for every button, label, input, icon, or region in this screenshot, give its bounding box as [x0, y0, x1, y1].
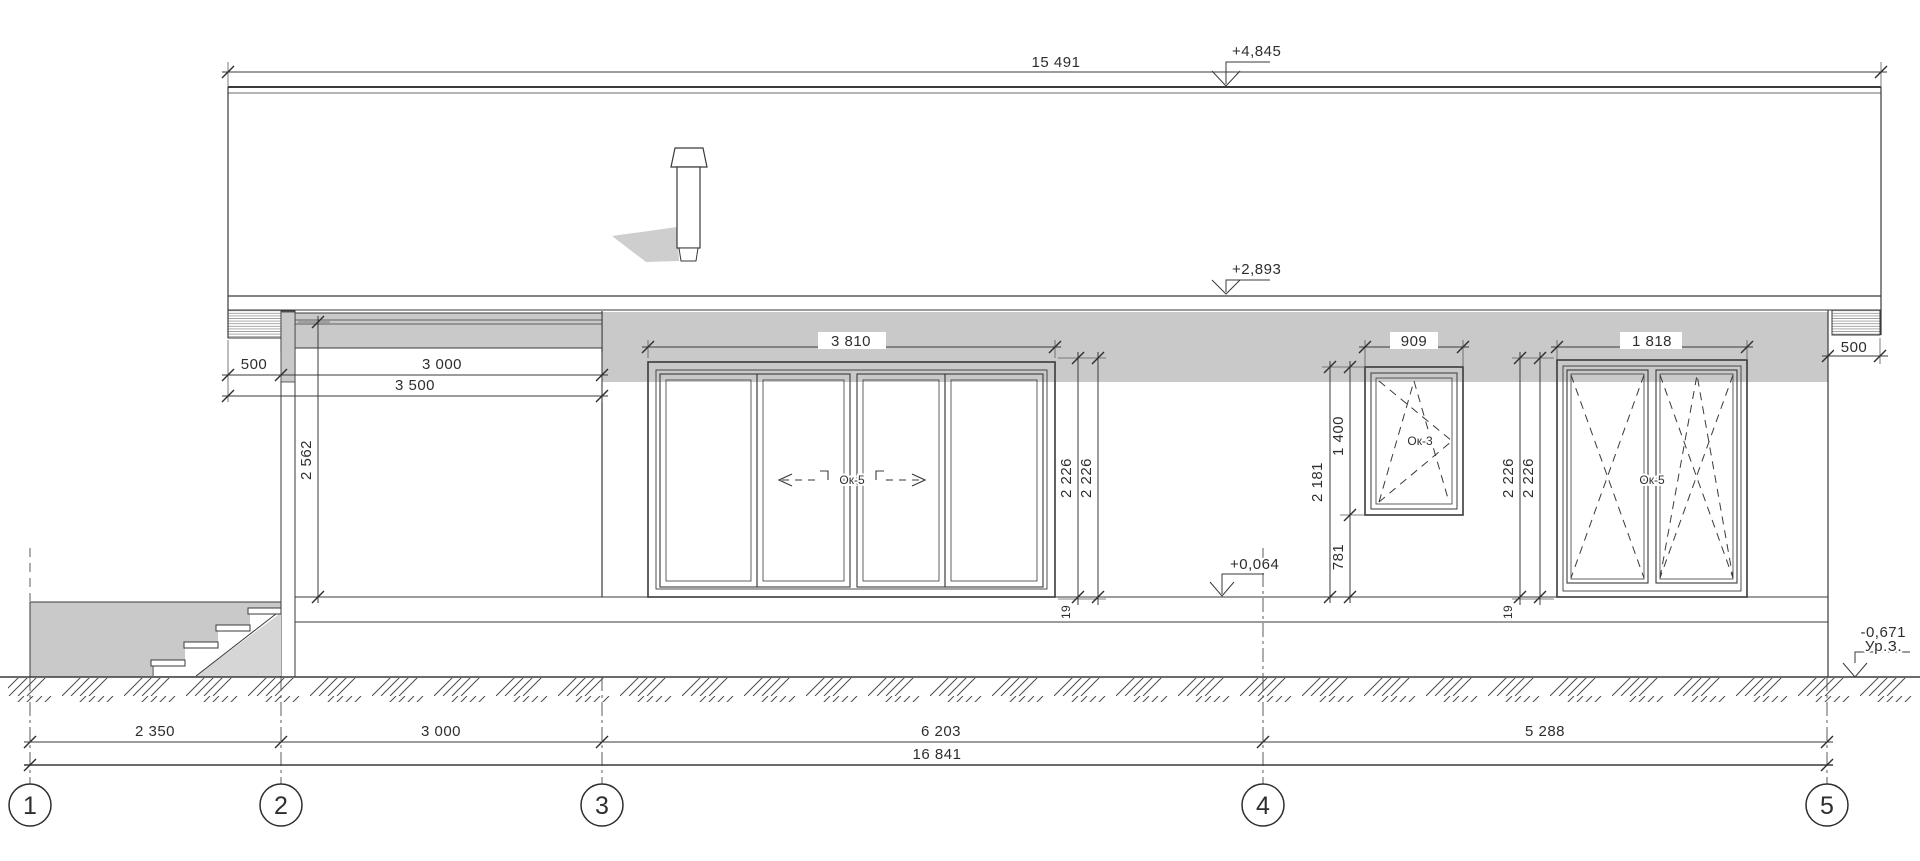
dim-w2-width: 909: [1401, 333, 1428, 350]
dim-w3-h2: 2 226: [1520, 458, 1537, 498]
window-ok3: Ок-3: [1365, 367, 1463, 515]
dim-w1-width: 3 810: [831, 333, 871, 350]
fascia-end-right: [1832, 310, 1880, 335]
dim-w2-sill: 781: [1330, 544, 1347, 571]
w1-glass-1: [666, 380, 751, 581]
w3-panel-1: [1567, 370, 1648, 583]
elevation-drawing: Ок-5 Ок-3 Ок-5 15 491 +4,845: [0, 0, 1920, 861]
w1-label: Ок-5: [839, 473, 865, 487]
w3-open-symbol-1: [1571, 375, 1644, 578]
chimney-cap: [671, 148, 707, 167]
axis-label-2: 2: [274, 792, 288, 820]
dim-bay-3-4: 6 203: [921, 723, 961, 740]
dim-right-overhang: 500: [1822, 338, 1888, 364]
level-floor-value: +0,064: [1230, 556, 1279, 573]
tread-4: [151, 660, 185, 666]
tread-2: [216, 625, 250, 631]
dim-roof-span-value: 15 491: [1032, 54, 1081, 71]
axis-label-1: 1: [23, 792, 37, 820]
dim-porch-overhang: 500: [241, 356, 268, 373]
roof: [228, 87, 1881, 338]
dim-porch-overall: 3 500: [395, 377, 435, 394]
canopy-band: [295, 313, 602, 348]
dim-w3-width: 1 818: [1632, 333, 1672, 350]
axis-label-3: 3: [595, 792, 609, 820]
dim-w1-sill: 19: [1059, 605, 1073, 619]
level-ground-name: Ур.З.: [1865, 638, 1902, 655]
porch-column: [281, 311, 295, 677]
dim-w2-head: 2 181: [1309, 462, 1326, 502]
level-mark-floor: +0,064: [1210, 548, 1279, 676]
chimney-base: [679, 248, 698, 261]
dim-bay-1-2: 2 350: [135, 723, 175, 740]
w3-label: Ок-5: [1639, 473, 1665, 487]
dim-roof-span: 15 491: [222, 54, 1887, 87]
w1-glass-2: [763, 380, 844, 581]
w2-label: Ок-3: [1407, 434, 1433, 448]
w1-glass-4: [951, 380, 1037, 581]
w1-panel-4: [945, 374, 1043, 587]
level-roof-value: +4,845: [1232, 43, 1281, 60]
level-mark-ground: -0,671 Ур.З.: [1843, 624, 1910, 677]
chimney-body: [677, 167, 700, 248]
column-shadow: [281, 312, 295, 382]
roof-face: [228, 87, 1881, 296]
axis-label-5: 5: [1820, 792, 1834, 820]
porch-canopy: [295, 313, 602, 348]
dim-w2-height: 1 400: [1330, 416, 1347, 456]
drawing-canvas: Ок-5 Ок-3 Ок-5 15 491 +4,845: [0, 0, 1920, 861]
dim-w1-h1: 2 226: [1058, 458, 1075, 498]
w1-slide-arrow-left: [779, 471, 828, 486]
dim-porch-height: 2 562: [298, 440, 315, 480]
dim-bay-2-3: 3 000: [421, 723, 461, 740]
w1-slide-arrow-right: [876, 471, 925, 486]
dim-w3-h1: 2 226: [1500, 458, 1517, 498]
dim-w1-h2: 2 226: [1078, 458, 1095, 498]
porch-steps: [30, 548, 281, 677]
w1-panel-2: [757, 374, 850, 587]
tread-1: [248, 608, 281, 614]
axis-bubbles: 1 2 3 4 5: [9, 784, 1848, 826]
fascia-end-left: [228, 310, 281, 338]
window-sliding-ok5: Ок-5: [648, 362, 1055, 597]
ground: [0, 677, 1920, 702]
w3-panel-2: [1656, 370, 1737, 583]
tread-3: [184, 642, 218, 648]
window-double-ok5: Ок-5: [1557, 360, 1747, 597]
dim-porch: 500 3 000 3 500 2 562: [222, 316, 608, 603]
dim-bay-4-5: 5 288: [1525, 723, 1565, 740]
dim-porch-width: 3 000: [422, 356, 462, 373]
level-mark-roof: +4,845: [1212, 43, 1281, 86]
dim-w3-sill: 19: [1501, 605, 1515, 619]
facade-wall: [30, 310, 1828, 677]
axis-label-4: 4: [1256, 792, 1270, 820]
w1-panel-1: [660, 374, 757, 587]
ground-hatch: [8, 678, 1912, 702]
dim-total: 16 841: [913, 746, 962, 763]
level-eaves-value: +2,893: [1232, 261, 1281, 278]
w3-open-symbol-2: [1660, 375, 1733, 578]
dim-right-overhang-value: 500: [1841, 339, 1868, 356]
